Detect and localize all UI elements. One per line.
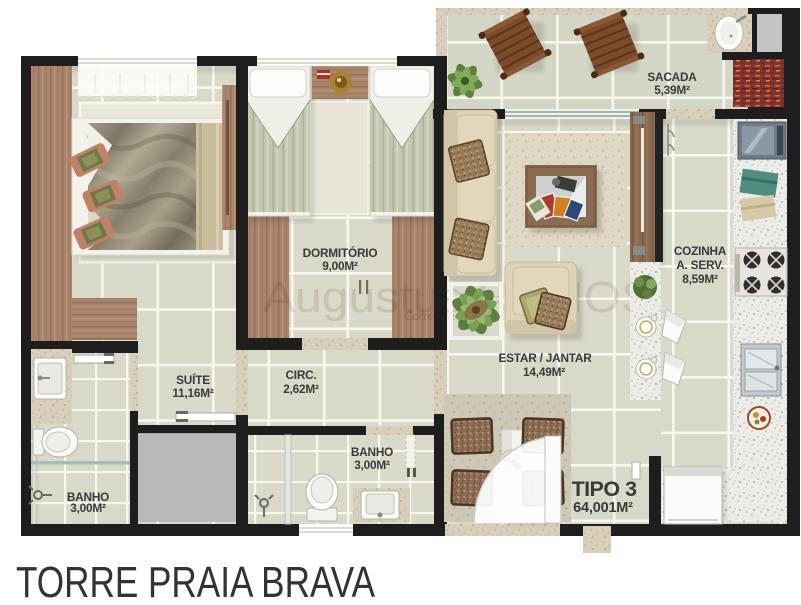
svg-text:BANHO: BANHO — [351, 445, 393, 459]
svg-text:8,59M²: 8,59M² — [682, 272, 718, 286]
svg-text:14,49M²: 14,49M² — [523, 365, 565, 379]
svg-text:A. SERV.: A. SERV. — [676, 258, 724, 272]
svg-text:3,00M²: 3,00M² — [70, 501, 106, 515]
svg-text:11,16M²: 11,16M² — [172, 386, 213, 400]
svg-text:2,62M²: 2,62M² — [283, 382, 319, 396]
svg-text:TORRE PRAIA BRAVA: TORRE PRAIA BRAVA — [16, 558, 376, 600]
svg-text:CIRC.: CIRC. — [285, 368, 316, 382]
svg-text:ESTAR / JANTAR: ESTAR / JANTAR — [498, 351, 592, 365]
svg-text:9,00M²: 9,00M² — [322, 259, 358, 273]
svg-text:SUÍTE: SUÍTE — [176, 373, 210, 387]
svg-text:TIPO 3: TIPO 3 — [571, 477, 637, 501]
svg-text:DORMITÓRIO: DORMITÓRIO — [303, 246, 378, 260]
svg-text:5,39M²: 5,39M² — [654, 83, 690, 97]
svg-text:64,001M²: 64,001M² — [573, 500, 633, 516]
svg-text:COZINHA: COZINHA — [674, 244, 727, 258]
svg-text:SACADA: SACADA — [647, 70, 697, 84]
svg-text:3,00M²: 3,00M² — [354, 458, 390, 472]
